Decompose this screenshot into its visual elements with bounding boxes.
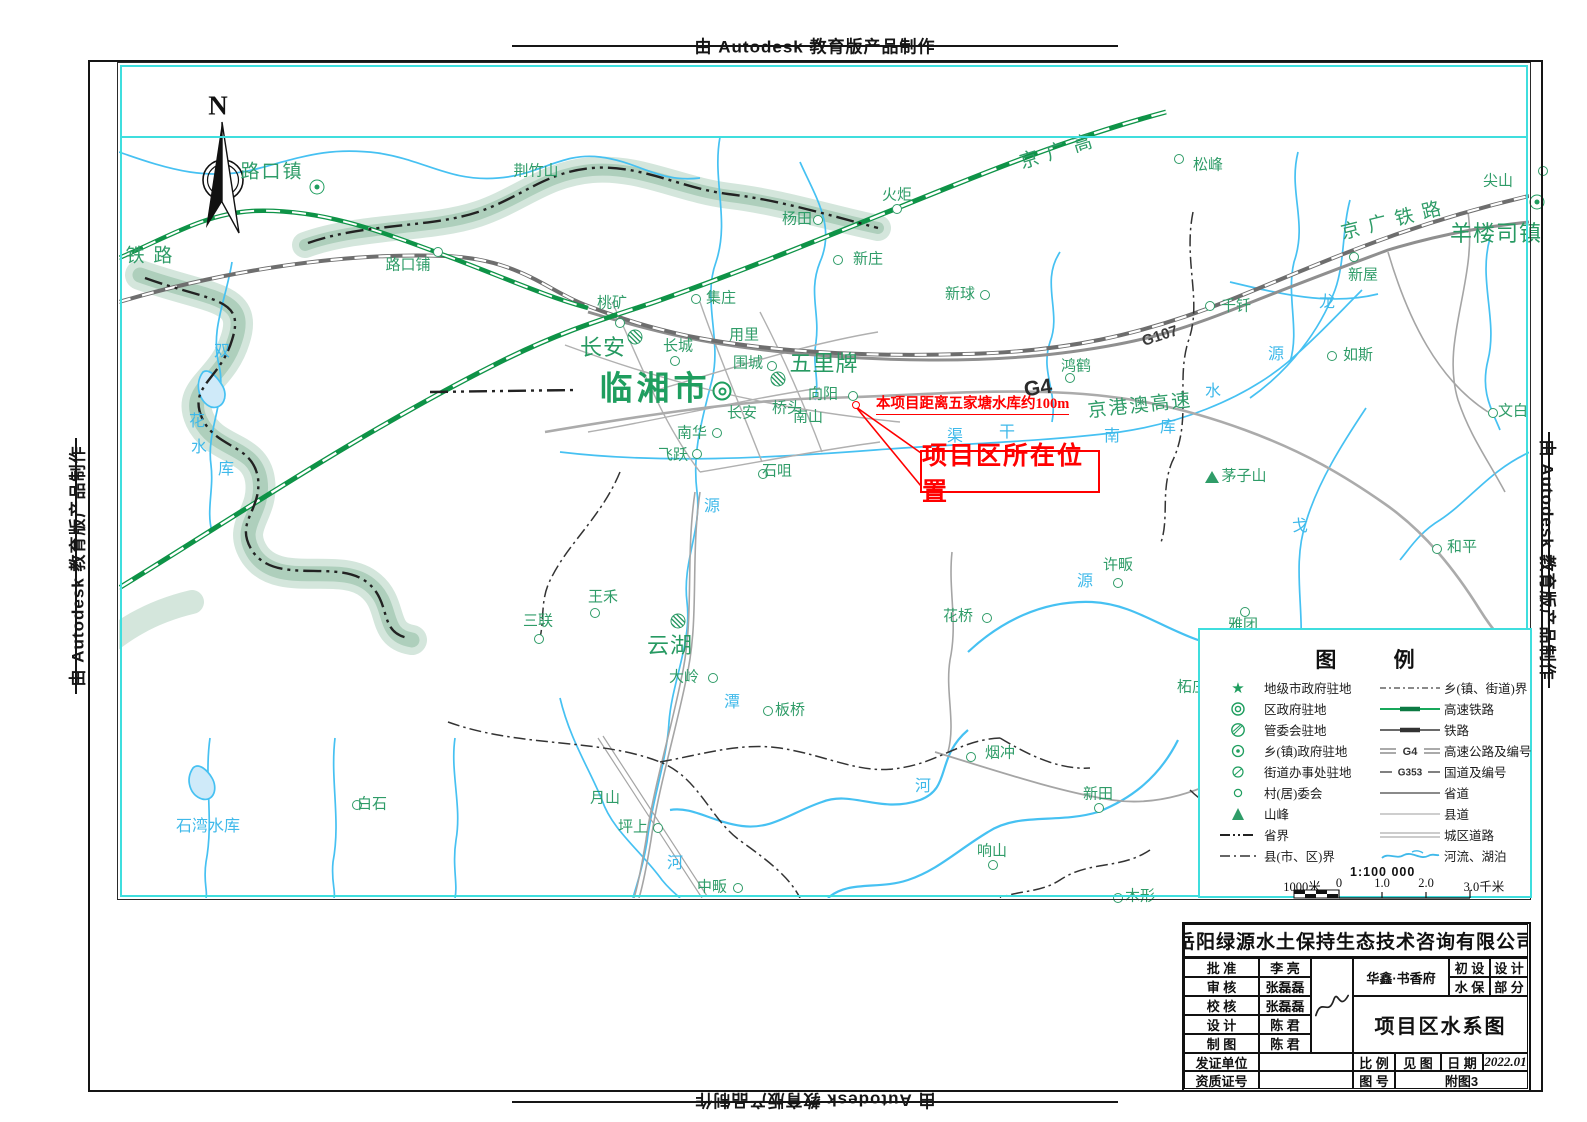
autodesk-banner-right: 由 Autodesk 教育版产品制作 xyxy=(1537,440,1562,681)
map-sheet: 路口镇铁 路路口铺荆竹山集庄桃矿杨田火炬新庄新球京 广 高松峰尖山京 广 铁 路… xyxy=(0,0,1587,1122)
sheet-border xyxy=(88,60,1543,1092)
autodesk-banner-left: 由 Autodesk 教育版产品制作 xyxy=(64,446,89,687)
autodesk-banner-top: 由 Autodesk 教育版产品制作 xyxy=(695,33,936,58)
autodesk-banner-bottom: 由 Autodesk 教育版产品制作 xyxy=(695,1090,936,1115)
